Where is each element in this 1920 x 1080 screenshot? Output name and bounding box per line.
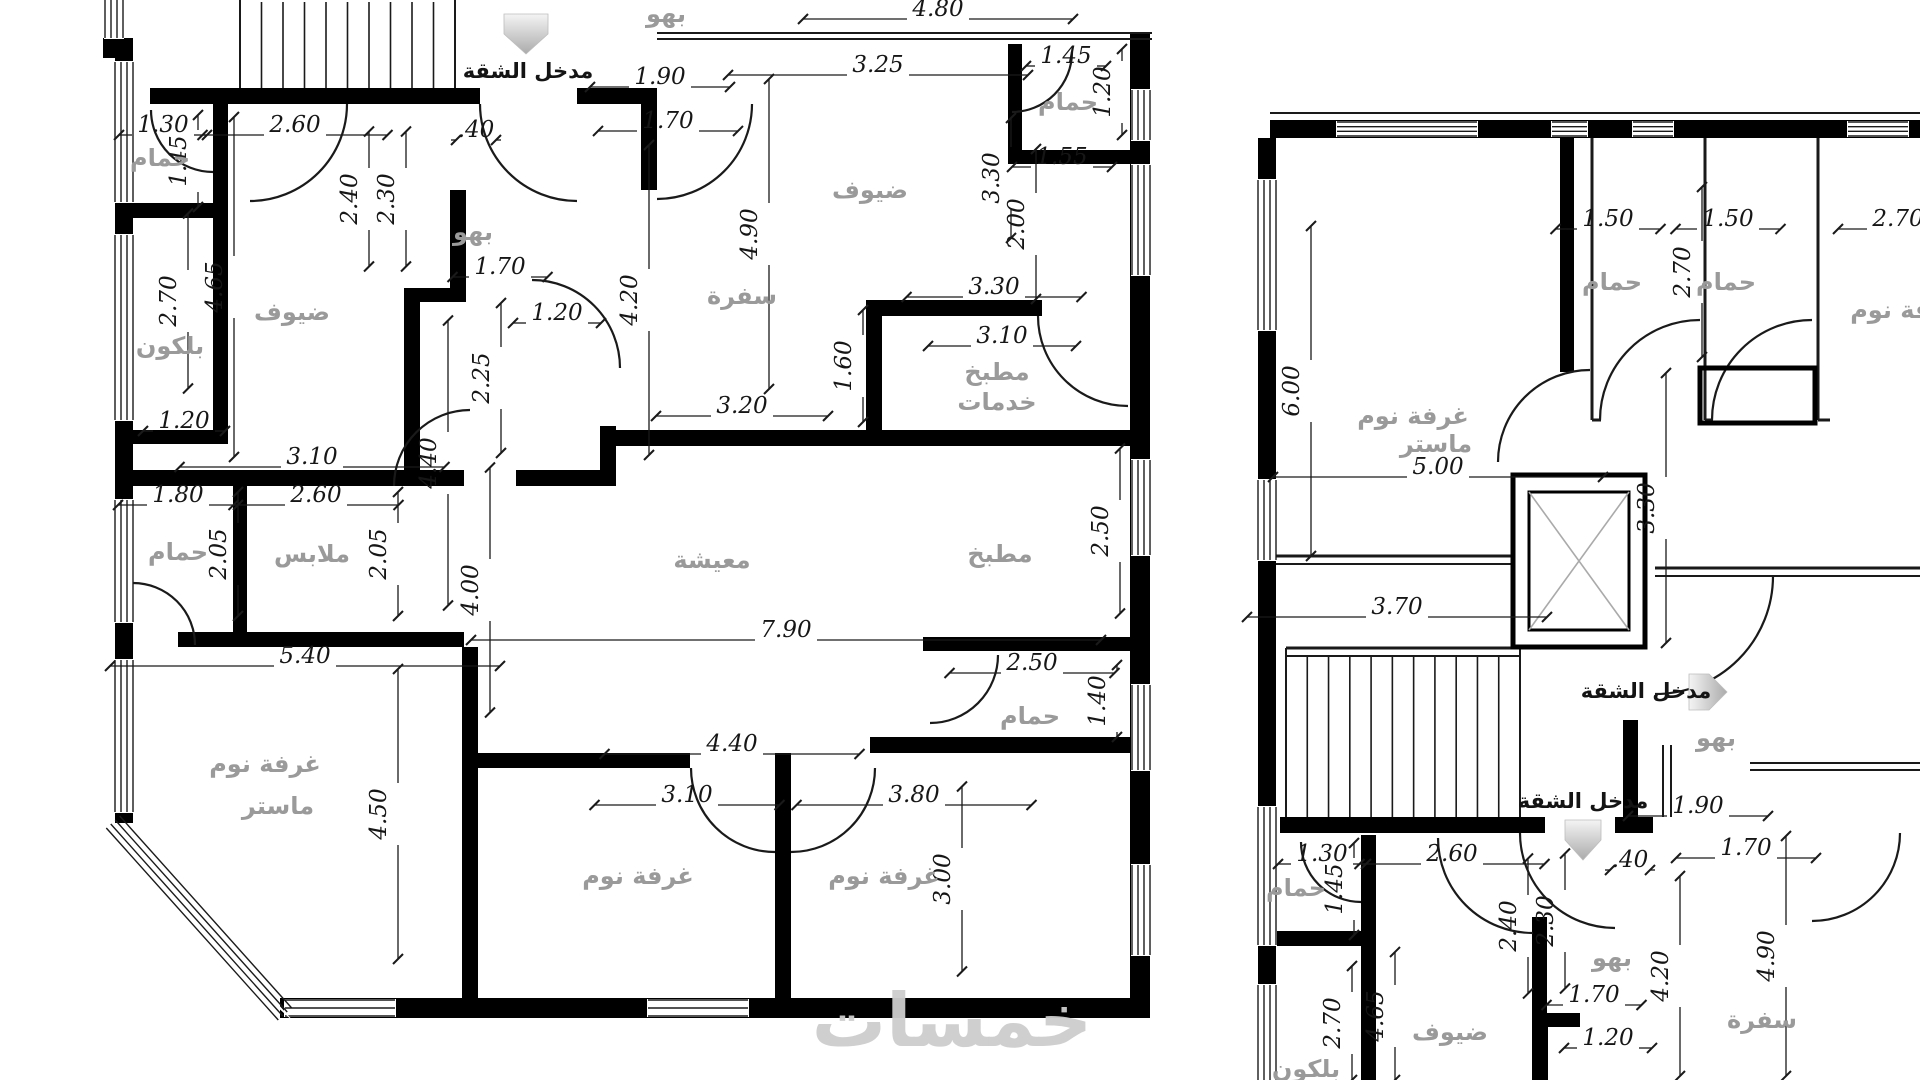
door-swing-arc [1812,833,1900,921]
dim-label: 4.40 [416,437,442,489]
dim-label: 1.40 [1085,675,1111,726]
wall [1276,931,1376,946]
dim-label: 3.70 [1371,594,1422,620]
wall [213,219,228,444]
dim-label: 3.30 [979,152,1005,203]
room-label: ضيوف [832,176,908,204]
watermark-text: خمسات [812,978,1092,1064]
window-glass [1551,121,1588,137]
dim-label: 1.70 [642,108,693,134]
wall [1008,44,1022,152]
room-label: بلكون [1272,1055,1340,1080]
wall [1532,1013,1580,1027]
room-label: غرفة نوم [828,862,940,890]
dim-label: 4.65 [1363,990,1389,1042]
dim-label: 1.70 [474,254,525,280]
wall [462,88,480,104]
dim-label: 3.80 [888,782,939,808]
door-swing-arc [480,104,577,201]
dim-label: 1.20 [1582,1025,1633,1051]
room-label: حمام [1038,88,1098,116]
room-label: سفرة [707,282,777,310]
dim-label: 2.50 [1088,505,1114,557]
wall [1615,817,1653,833]
room-label: حمام [130,144,190,172]
room-label: ضيوف [254,298,330,326]
room-label: معيشة [673,546,750,574]
window-glass [1847,121,1909,137]
room-label: مطبخ [964,358,1029,386]
dim-label: 2.50 [1005,650,1057,676]
wall [882,300,1042,316]
room-label: حمام [148,538,208,566]
dim-label: 2.30 [374,173,400,225]
dim-label: 1.50 [1702,206,1753,232]
dim-label: 4.40 [705,731,757,757]
room-label: بهو [645,0,686,28]
dim-label: 1.70 [1568,982,1619,1008]
dim-label: 1.90 [634,64,685,90]
window-glass [114,499,134,623]
room-label: حمام [1582,268,1642,296]
door-swing-arc [791,768,875,852]
dim-label: 3.10 [661,782,712,808]
dim-label: 1.30 [137,112,188,138]
dim-label: .40 [1612,847,1649,873]
window-glass [1131,459,1151,556]
window-glass [1131,864,1151,956]
door-swing-arc [1498,370,1590,462]
dim-label: 4.90 [737,208,763,260]
wall [462,647,478,998]
dim-label: 4.90 [1754,930,1780,982]
room-label: ملابس [274,540,350,568]
dim-label: 4.00 [458,564,484,616]
dim-label: 2.60 [1425,841,1477,867]
apartment-entrance-arrow-icon [1565,820,1601,860]
window-glass [1632,121,1674,137]
dim-label: 6.00 [1279,365,1305,416]
entrance-label: مدخل الشقة [463,59,594,83]
dim-label: 2.00 [1004,198,1030,250]
wall [577,88,657,104]
dim-label: 1.45 [1040,43,1091,69]
dim-label: 1.20 [531,300,582,326]
wall [1361,835,1376,940]
dim-label: 2.05 [206,528,232,580]
door-swing-arc [1038,316,1128,406]
room-label: غرفة نوم [1357,402,1469,430]
dim-label: 1.30 [1296,841,1347,867]
room-label: غرفة نوم [1850,296,1920,324]
dim-label: 2.70 [1320,997,1346,1049]
room-label: ماستر [241,792,314,820]
dim-label: 1.50 [1582,206,1633,232]
dim-label: 3.10 [976,323,1027,349]
wall [404,288,466,302]
wall [1560,138,1574,372]
room-label: حمام [1000,702,1060,730]
door-swing-arc [930,655,998,723]
dim-label: 2.40 [1496,900,1522,952]
window-glass [1131,164,1151,276]
dim-label: 1.90 [1672,793,1723,819]
floorplan-canvas: 1.302.60.401.901.704.803.251.451.201.552… [0,0,1920,1080]
dim-label: 1.60 [831,340,857,391]
dim-label: 1.80 [152,482,203,508]
wall [600,426,616,486]
watermark-layer: خمسات [812,978,1092,1064]
room-label: سفرة [1727,1006,1797,1034]
wall [1532,1027,1548,1080]
dim-label: 2.40 [337,173,363,225]
room-label: بهو [1695,724,1736,752]
dim-label: 7.90 [760,617,811,643]
room-label: غرفة نوم [209,750,321,778]
door-swing-arc [691,768,775,852]
dim-label: 2.30 [1533,895,1559,947]
dim-label: 2.25 [469,352,495,404]
floorplan-drawing: 1.302.60.401.901.704.803.251.451.201.552… [0,0,1920,1080]
entrance-label: مدخل الشقة [1518,789,1649,813]
wall [866,300,882,432]
dim-label: 2.60 [268,112,320,138]
shaft-outline [1700,368,1815,423]
dim-label: 1.70 [1720,835,1771,861]
window-pane-line [120,816,292,1008]
dim-label: 4.20 [617,274,643,326]
window-glass [1336,121,1478,137]
dim-label: 1.55 [1036,144,1087,170]
door-swing-arc [1655,576,1773,694]
room-label: ضيوف [1412,1018,1488,1046]
door-swing-arc [1600,320,1700,420]
wall [103,38,133,58]
dim-label: 2.70 [1871,206,1920,232]
dim-label: 4.20 [1648,950,1674,1002]
wall [213,103,228,219]
window-glass [1257,179,1277,331]
window-glass [104,0,124,39]
apartment-entrance-arrow-icon [504,14,548,54]
room-label: بهو [452,218,493,246]
dim-label: .40 [458,117,495,143]
entrance-label: مدخل الشقة [1581,679,1712,703]
wall [775,753,791,998]
dim-label: 2.05 [366,528,392,580]
dim-label: 4.80 [911,0,963,22]
window-glass [114,659,134,813]
room-label: بهو [1591,944,1632,972]
room-label: حمام [1266,874,1326,902]
wall [616,430,1130,446]
room-label: خدمات [957,388,1036,416]
dim-label: 3.30 [968,274,1019,300]
window-glass [114,61,134,203]
dim-label: 1.20 [158,408,209,434]
dim-label: 4.65 [202,261,228,313]
dim-label: 3.20 [716,393,767,419]
room-label: بلكون [136,332,204,360]
wall [870,737,1132,753]
wall [150,88,462,104]
room-label: حمام [1696,268,1756,296]
window-glass [114,234,134,421]
wall [516,470,602,486]
dim-label: 3.30 [1634,482,1660,533]
window-glass [1257,479,1277,561]
wall [478,753,690,768]
window-pane-line [106,828,278,1020]
room-label: مطبخ [967,540,1032,568]
room-label: ماستر [1399,430,1472,458]
window-pane-line [115,820,287,1012]
dim-label: 2.70 [156,275,182,327]
window-glass [103,813,295,1023]
dim-label: 5.40 [279,643,330,669]
wall [1280,817,1545,833]
window-pane-line [111,824,283,1016]
window-glass [1131,684,1151,771]
dim-label: 3.10 [286,444,337,470]
dim-label: 4.50 [366,788,392,840]
dim-label: 2.70 [1670,246,1696,298]
dim-label: 2.60 [289,482,341,508]
dim-label: 3.25 [852,52,903,78]
window-glass [1131,89,1151,141]
room-label: غرفة نوم [582,862,694,890]
